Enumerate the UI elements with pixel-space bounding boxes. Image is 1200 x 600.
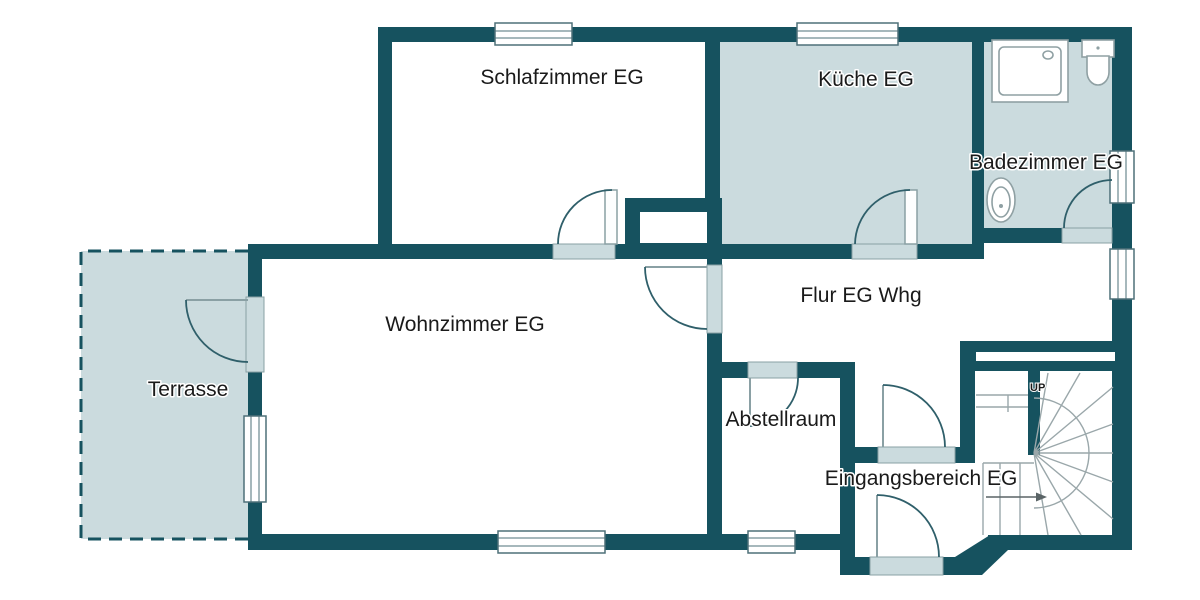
door-hall-entrance (878, 385, 955, 463)
window-livingroom-bottom (498, 531, 605, 553)
door-livingroom (645, 265, 722, 333)
shaft-niche (640, 212, 707, 243)
stair-up-label: UP (1030, 382, 1045, 394)
door-swing-arc (645, 267, 707, 329)
basin-drain-icon (999, 204, 1003, 208)
door-bedroom (553, 190, 617, 259)
stair-newel-wall (1028, 361, 1040, 455)
door-sill (748, 362, 797, 378)
basin-inner (992, 187, 1010, 217)
toilet-button-icon (1096, 46, 1099, 49)
wall-stair-top-slot (976, 352, 1115, 361)
shower-tray (992, 40, 1068, 102)
staircase: UP (976, 373, 1113, 535)
door-sill (707, 265, 722, 333)
door-sill (553, 244, 615, 259)
door-sill (246, 297, 264, 372)
shower-drain-icon (1043, 51, 1053, 59)
room-label-wohnzimmer: Wohnzimmer EG (385, 313, 544, 336)
wall-kitchen-bathroom (972, 42, 984, 244)
door-sill (852, 244, 917, 259)
room-label-eingangsbereich: Eingangsbereich EG (825, 467, 1018, 490)
window-frame (495, 23, 572, 45)
door-entrance (870, 495, 943, 575)
washbasin (987, 178, 1015, 222)
stair-treads-winder (1034, 373, 1113, 535)
window-frame (498, 531, 605, 553)
outer-wall-stair-bottom (988, 535, 1127, 550)
window-frame (244, 416, 266, 502)
window-frame (748, 531, 795, 553)
door-swing-arc (877, 495, 939, 557)
door-sill (1062, 228, 1112, 243)
window-kitchen-top (797, 23, 898, 45)
window-frame (797, 23, 898, 45)
door-leaf (905, 190, 917, 244)
door-leaf (605, 190, 617, 244)
door-swing-arc (883, 385, 945, 447)
window-hall-right (1110, 249, 1134, 299)
wall-bedroom-kitchen (705, 27, 720, 198)
floor-plan: UP Schlafzimmer EG Küche EG Badezimmer E… (0, 0, 1200, 600)
wall-livingroom-top (248, 244, 392, 259)
outer-wall-left-bedroom (378, 27, 392, 257)
outer-wall-left-livingroom (248, 244, 262, 550)
window-frame (1110, 249, 1134, 299)
room-label-badezimmer: Badezimmer EG (969, 151, 1123, 174)
toilet-bowl (1087, 56, 1109, 85)
room-label-schlafzimmer: Schlafzimmer EG (480, 66, 643, 89)
room-fills (81, 42, 1112, 539)
room-label-kueche: Küche EG (818, 68, 914, 91)
room-label-terrasse: Terrasse (148, 378, 229, 401)
door-swing-arc (558, 190, 612, 244)
room-label-flur: Flur EG Whg (800, 284, 921, 307)
window-storage-bottom (748, 531, 795, 553)
stair-treads-straight (976, 395, 1034, 535)
window-livingroom-left (244, 416, 266, 502)
window-bedroom-top (495, 23, 572, 45)
outer-wall-step (955, 535, 1008, 575)
door-sill (878, 447, 955, 463)
room-label-abstellraum: Abstellraum (726, 408, 837, 431)
door-sill (870, 557, 943, 575)
wall-kitchen-hall (718, 244, 984, 259)
